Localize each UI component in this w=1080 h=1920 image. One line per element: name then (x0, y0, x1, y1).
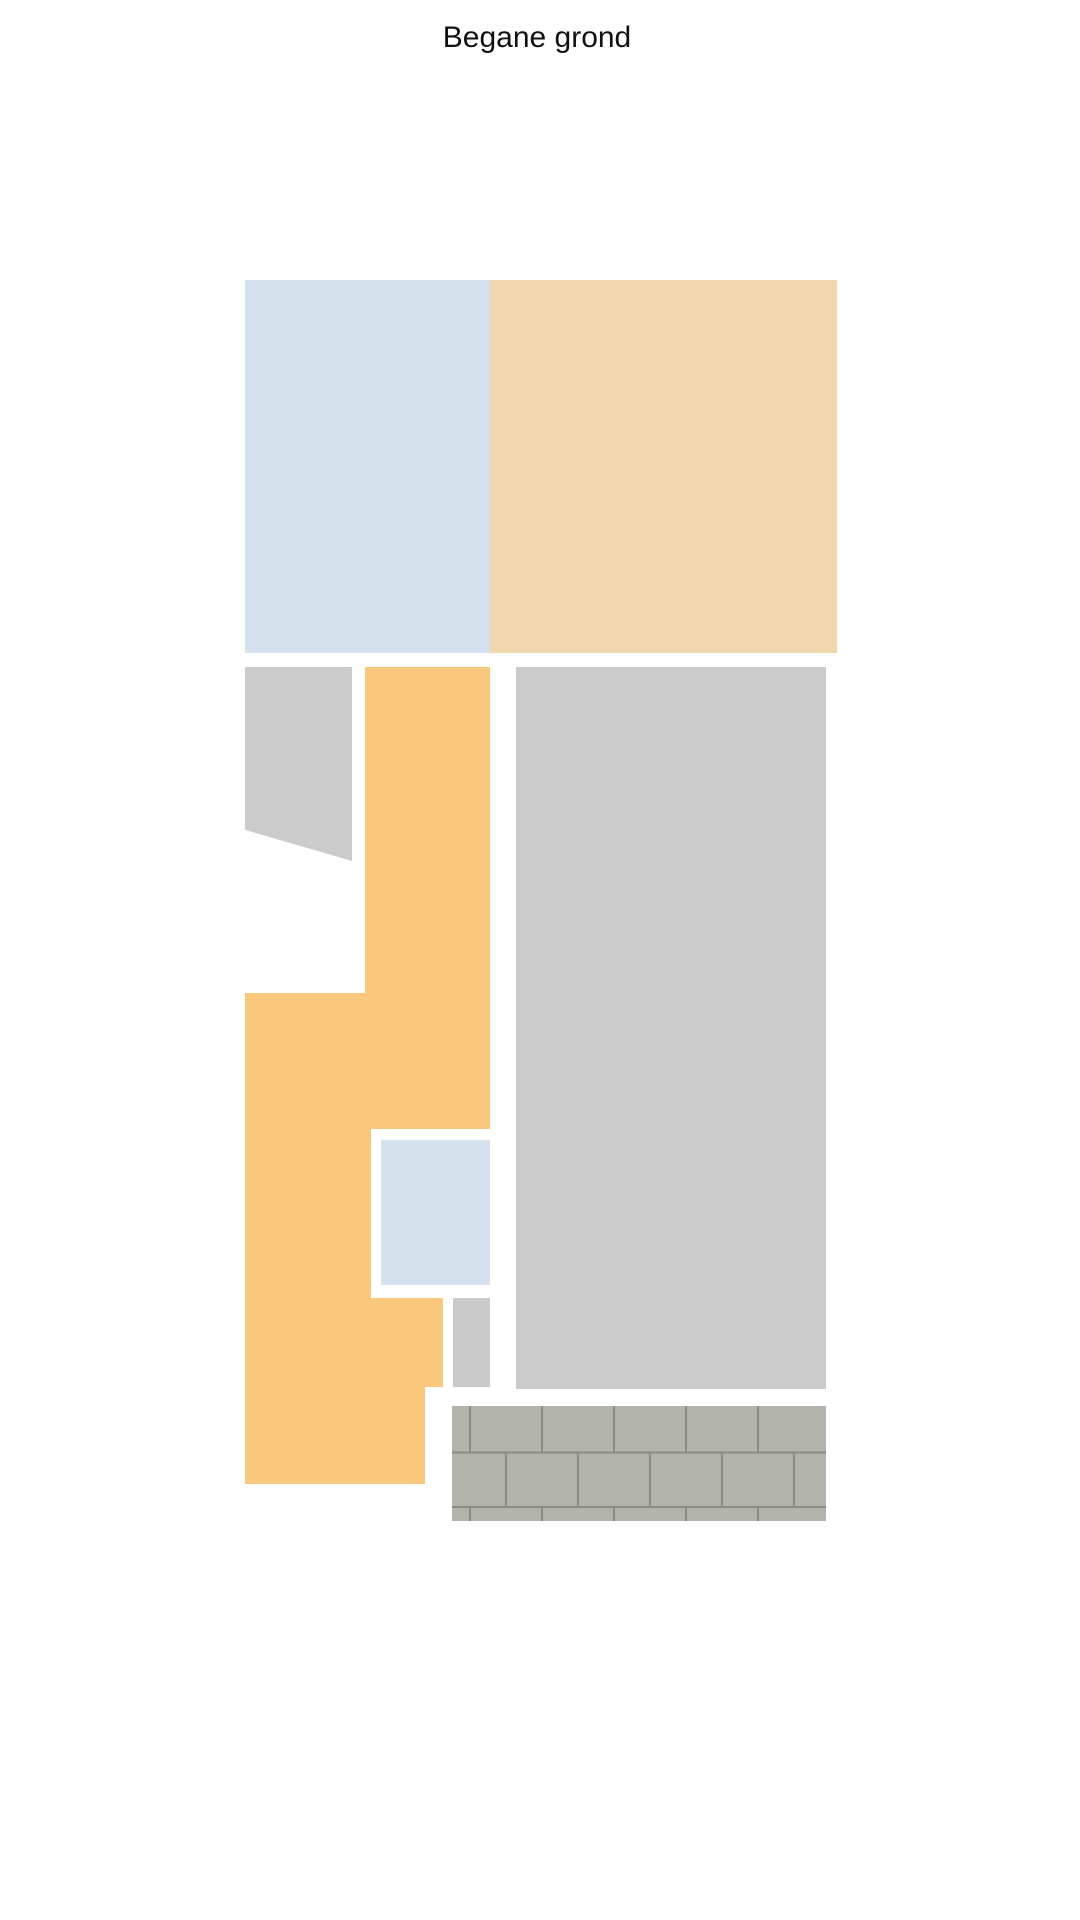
svg-text:Begane grond: Begane grond (443, 21, 632, 54)
